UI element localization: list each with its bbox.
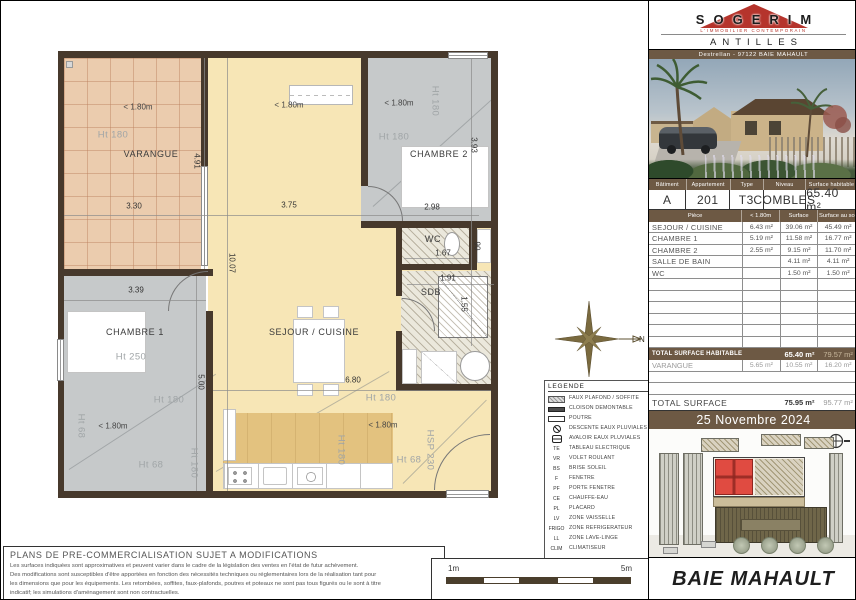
logo-block: SOGERIM L'IMMOBILIER CONTEMPORAIN ANTILL… bbox=[649, 1, 856, 50]
room-table-rows: SEJOUR / CUISINE 6.43 m² 39.06 m² 45.49 … bbox=[649, 222, 856, 348]
empty-row bbox=[649, 383, 856, 395]
siteplan-building bbox=[761, 434, 801, 446]
room-surface-sol: 45.49 m² bbox=[818, 222, 856, 232]
wall-bottom bbox=[58, 491, 498, 498]
legend-title: LEGENDE bbox=[548, 383, 649, 392]
room-name bbox=[649, 337, 743, 347]
varangue-name: VARANGUE bbox=[649, 360, 743, 371]
wall-right bbox=[491, 51, 498, 498]
wall-chambre1-sejour bbox=[206, 311, 213, 491]
siteplan-building bbox=[829, 453, 843, 543]
dim-line bbox=[64, 215, 479, 216]
svg-text:N: N bbox=[639, 335, 645, 344]
siteplan-car bbox=[663, 547, 678, 554]
legend-symbol: LV bbox=[548, 516, 565, 523]
legend-label: ZONE REFRIGERATEUR bbox=[569, 526, 632, 532]
room-name bbox=[649, 291, 743, 301]
plan-label: CHAMBRE 1 bbox=[106, 327, 164, 337]
unit-value-cell: 65.40 m² bbox=[806, 190, 856, 209]
varangue-surface: 10.55 m² bbox=[781, 360, 819, 371]
disclaimer-lines: Les surfaces indiquées sont approximativ… bbox=[10, 562, 438, 599]
legend-symbol: PL bbox=[548, 506, 565, 513]
room-table-row bbox=[649, 325, 856, 336]
plan-label: 5.00 bbox=[197, 374, 206, 390]
wall-chambre2-bottom bbox=[361, 221, 498, 228]
plan-label: 90 bbox=[473, 242, 482, 251]
plan-label: CHAMBRE 2 bbox=[410, 149, 468, 159]
legend-label: PLACARD bbox=[569, 506, 595, 512]
plan-label: Ht 180 bbox=[366, 393, 396, 404]
unit-header-cell: Appartement bbox=[687, 179, 731, 190]
dim-line bbox=[407, 284, 494, 285]
compass-rose-icon: N bbox=[541, 296, 646, 382]
wall-chambre2-left bbox=[361, 58, 368, 186]
room-lt180 bbox=[743, 256, 781, 266]
plan-label: 3.75 bbox=[281, 201, 297, 210]
plan-label: WC bbox=[425, 234, 441, 244]
total-habitable-floor: 79.57 m² bbox=[818, 350, 856, 359]
unit-value-cell: COMBLES bbox=[764, 190, 807, 209]
room-table-row bbox=[649, 279, 856, 290]
room-lt180 bbox=[743, 302, 781, 312]
siteplan-building bbox=[804, 437, 834, 449]
plan-label: SDB bbox=[421, 287, 441, 297]
room-lt180: 5.19 m² bbox=[743, 233, 781, 243]
legend-symbol bbox=[548, 396, 565, 403]
sdb-washbasin bbox=[421, 351, 457, 384]
total-surface-label: TOTAL SURFACE bbox=[649, 395, 781, 410]
room-table-row: WC 1.50 m² 1.50 m² bbox=[649, 268, 856, 279]
room-name: CHAMBRE 1 bbox=[649, 233, 743, 243]
bed-chambre1 bbox=[67, 311, 146, 373]
total-habitable-label: TOTAL SURFACE HABITABLE bbox=[649, 351, 781, 357]
siteplan-building bbox=[659, 453, 679, 545]
legend-item: PL PLACARD bbox=[548, 504, 649, 514]
divider bbox=[661, 34, 846, 35]
siteplan-building bbox=[701, 438, 739, 452]
room-lt180 bbox=[743, 337, 781, 347]
room-name: SALLE DE BAIN bbox=[649, 256, 743, 266]
legend-item: FRIGO ZONE REFRIGERATEUR bbox=[548, 524, 649, 534]
scale-segment bbox=[557, 577, 594, 584]
siteplan-unit-highlight bbox=[715, 459, 753, 495]
unit-header-cell: Niveau bbox=[764, 179, 806, 190]
legend-symbol: F bbox=[548, 476, 565, 483]
scale-segment bbox=[594, 577, 631, 584]
plan-label: Ht 180 bbox=[189, 448, 200, 478]
room-name bbox=[649, 314, 743, 324]
room-name: SEJOUR / CUISINE bbox=[649, 222, 743, 232]
plan-label: Ht 250 bbox=[116, 352, 146, 363]
plan-label: Ht 68 bbox=[397, 455, 422, 466]
room-table-row: SALLE DE BAIN 4.11 m² 4.11 m² bbox=[649, 256, 856, 267]
legend-item: DESCENTE EAUX PLUVIALES bbox=[548, 424, 649, 434]
siteplan-tree bbox=[817, 537, 834, 554]
room-lt180: 6.43 m² bbox=[743, 222, 781, 232]
plan-label: Ht 180 bbox=[336, 435, 347, 465]
room-surface: 1.50 m² bbox=[781, 268, 819, 278]
plan-label: < 1.80m bbox=[274, 101, 303, 110]
siteplan-tree bbox=[761, 537, 778, 554]
room-table-row bbox=[649, 314, 856, 325]
plan-label: 4.91 bbox=[193, 153, 202, 169]
siteplan-roof-vent bbox=[741, 519, 801, 531]
plan-label: Ht 68 bbox=[139, 460, 164, 471]
legend-item: VR VOLET ROULANT bbox=[548, 454, 649, 464]
brand-tagline: L'IMMOBILIER CONTEMPORAIN bbox=[649, 28, 856, 33]
floor-plan: < 1.80mHt 180VARANGUE3.304.91< 1.80m3.75… bbox=[1, 1, 648, 600]
plan-label: < 1.80m bbox=[123, 103, 152, 112]
scale-segment bbox=[520, 577, 557, 584]
legend-symbol: CLIM bbox=[548, 546, 565, 553]
disclaimer-line: les dimensions que pour les équipements.… bbox=[10, 580, 438, 589]
legend-label: CLIMATISEUR bbox=[569, 546, 606, 552]
room-surface-sol bbox=[818, 325, 856, 335]
legend-item: AVALOIR EAUX PLUVIALES bbox=[548, 434, 649, 444]
room-table-row bbox=[649, 291, 856, 302]
room-table-row bbox=[649, 302, 856, 313]
room-header-cell: Surface bbox=[780, 210, 818, 222]
room-surface-sol: 16.77 m² bbox=[818, 233, 856, 243]
legend-symbol: FRIGO bbox=[548, 526, 565, 533]
legend-label: FENETRE bbox=[569, 476, 595, 482]
wall-wc-left-lower bbox=[396, 331, 402, 389]
scale-segment bbox=[446, 577, 483, 584]
room-name: CHAMBRE 2 bbox=[649, 245, 743, 255]
plan-label: 3.30 bbox=[126, 202, 142, 211]
room-surface: 4.11 m² bbox=[781, 256, 819, 266]
legend-item: PF PORTE FENETRE bbox=[548, 484, 649, 494]
legend-label: ZONE VAISSELLE bbox=[569, 516, 615, 522]
room-lt180 bbox=[743, 268, 781, 278]
siteplan-building-rooms bbox=[755, 459, 803, 495]
sdb-washer bbox=[402, 349, 417, 384]
dim-line bbox=[64, 300, 206, 301]
room-surface bbox=[781, 291, 819, 301]
wall-top bbox=[58, 51, 498, 58]
kitchen-hob bbox=[228, 467, 252, 485]
unit-header-cell: Bâtiment bbox=[649, 179, 687, 190]
plan-label: 1.91 bbox=[440, 274, 456, 283]
room-header-cell: Pièce bbox=[649, 210, 742, 222]
legend-label: VOLET ROULANT bbox=[569, 456, 615, 462]
plan-label: 1.55 bbox=[460, 296, 469, 312]
kitchen-sink bbox=[263, 467, 287, 485]
side-panel: SOGERIM L'IMMOBILIER CONTEMPORAIN ANTILL… bbox=[648, 1, 856, 600]
window-chambre1-left bbox=[57, 339, 64, 381]
room-lt180 bbox=[743, 291, 781, 301]
kitchen-oven bbox=[297, 467, 323, 485]
unit-value-cell: 201 bbox=[686, 190, 730, 209]
plan-label: 3.93 bbox=[470, 137, 479, 153]
total-habitable-surface: 65.40 m² bbox=[781, 350, 819, 359]
legend-item: TE TABLEAU ELECTRIQUE bbox=[548, 444, 649, 454]
dining-chair bbox=[297, 306, 313, 318]
room-surface bbox=[781, 325, 819, 335]
room-lt180 bbox=[743, 314, 781, 324]
room-header-cell: Surface au sol bbox=[818, 210, 856, 222]
dim-line bbox=[471, 58, 472, 346]
wall-wc-bottom bbox=[401, 264, 477, 270]
dim-line bbox=[204, 58, 205, 269]
legend-label: POUTRE bbox=[569, 416, 592, 422]
legend-items: FAUX PLAFOND / SOFFITE CLOISON DEMONTABL… bbox=[548, 394, 649, 554]
scale-label-5m: 5m bbox=[621, 564, 632, 573]
room-name: WC bbox=[649, 268, 743, 278]
disclaimer-box: PLANS DE PRE-COMMERCIALISATION SUJET A M… bbox=[3, 546, 445, 600]
plan-label: Ht 180 bbox=[154, 395, 184, 406]
total-surface-floor: 95.77 m² bbox=[818, 395, 856, 410]
plan-label: 10.07 bbox=[228, 253, 237, 273]
room-surface-sol bbox=[818, 314, 856, 324]
plan-label: Ht 180 bbox=[379, 132, 409, 143]
legend-label: TABLEAU ELECTRIQUE bbox=[569, 446, 630, 452]
plan-label: HSP 230 bbox=[425, 430, 436, 471]
date-band: 25 Novembre 2024 bbox=[649, 411, 856, 429]
disclaimer-title: PLANS DE PRE-COMMERCIALISATION SUJET A M… bbox=[10, 550, 438, 560]
city-band: BAIE MAHAULT bbox=[649, 558, 856, 600]
varangue-lt: 5.65 m² bbox=[743, 360, 781, 371]
brand-name: SOGERIM bbox=[649, 12, 856, 27]
room-table-row: CHAMBRE 2 2.55 m² 9.15 m² 11.70 m² bbox=[649, 245, 856, 256]
legend-label: CHAUFFE-EAU bbox=[569, 496, 608, 502]
plan-label: < 1.80m bbox=[98, 422, 127, 431]
legend-symbol: BS bbox=[548, 466, 565, 473]
room-surface-sol: 11.70 m² bbox=[818, 245, 856, 255]
room-name bbox=[649, 325, 743, 335]
plan-label: 1.67 bbox=[435, 249, 451, 258]
room-name bbox=[649, 302, 743, 312]
siteplan-building bbox=[683, 453, 703, 545]
empty-row bbox=[649, 372, 856, 383]
legend-label: PORTE FENETRE bbox=[569, 486, 615, 492]
legend-symbol: CE bbox=[548, 496, 565, 503]
wall-wc-left-upper bbox=[396, 228, 402, 296]
legend-symbol: TE bbox=[548, 446, 565, 453]
room-surface bbox=[781, 279, 819, 289]
unit-header-cell: Type bbox=[731, 179, 765, 190]
plan-label: 2.98 bbox=[424, 203, 440, 212]
plan-label: 6.80 bbox=[345, 376, 361, 385]
window-entry-bottom bbox=[446, 490, 489, 498]
legend-symbol bbox=[548, 407, 565, 412]
plan-label: Ht 68 bbox=[76, 414, 87, 439]
scale-segment bbox=[483, 577, 520, 584]
plan-label: 3.39 bbox=[128, 286, 144, 295]
legend-label: ZONE LAVE-LINGE bbox=[569, 536, 618, 542]
room-lt180 bbox=[743, 325, 781, 335]
legend-item: LL ZONE LAVE-LINGE bbox=[548, 534, 649, 544]
room-surface-sol bbox=[818, 279, 856, 289]
legend-symbol bbox=[548, 426, 565, 433]
plan-label: < 1.80m bbox=[368, 421, 397, 430]
siteplan-car bbox=[701, 541, 716, 548]
room-lt180: 2.55 m² bbox=[743, 245, 781, 255]
scale-label-1m: 1m bbox=[448, 564, 459, 573]
legend-label: DESCENTE EAUX PLUVIALES bbox=[569, 426, 647, 432]
legend: LEGENDE FAUX PLAFOND / SOFFITE CLOISON D… bbox=[544, 380, 653, 562]
legend-item: BS BRISE SOLEIL bbox=[548, 464, 649, 474]
date-text: 25 Novembre 2024 bbox=[696, 413, 810, 427]
room-surface-sol bbox=[818, 337, 856, 347]
room-surface bbox=[781, 302, 819, 312]
address-band: Destrellan - 97122 BAIE MAHAULT bbox=[649, 50, 856, 59]
room-surface-sol bbox=[818, 291, 856, 301]
legend-item: POUTRE bbox=[548, 414, 649, 424]
room-surface-sol bbox=[818, 302, 856, 312]
legend-symbol: LL bbox=[548, 536, 565, 543]
legend-label: CLOISON DEMONTABLE bbox=[569, 406, 633, 412]
varangue-surface-sol: 16.20 m² bbox=[818, 360, 856, 371]
dim-line bbox=[404, 258, 469, 259]
room-surface-sol: 4.11 m² bbox=[818, 256, 856, 266]
unit-table-values: A201T3COMBLES65.40 m² bbox=[649, 190, 856, 210]
legend-symbol: PF bbox=[548, 486, 565, 493]
room-surface bbox=[781, 337, 819, 347]
city-name: BAIE MAHAULT bbox=[672, 568, 835, 591]
room-surface-sol: 1.50 m² bbox=[818, 268, 856, 278]
room-table-row bbox=[649, 337, 856, 348]
kitchen-cupboard bbox=[223, 409, 236, 461]
siteplan-tree bbox=[733, 537, 750, 554]
plan-label: Ht 180 bbox=[98, 130, 128, 141]
photo-flowers bbox=[705, 155, 815, 179]
total-habitable-band: TOTAL SURFACE HABITABLE 65.40 m² 79.57 m… bbox=[649, 348, 856, 360]
dim-line bbox=[227, 58, 228, 491]
sdb-basin-round bbox=[460, 351, 490, 381]
total-surface-value: 75.95 m² bbox=[781, 395, 819, 410]
dim-line bbox=[213, 390, 491, 391]
project-photo bbox=[649, 59, 856, 179]
room-name bbox=[649, 279, 743, 289]
legend-item: CLOISON DEMONTABLE bbox=[548, 404, 649, 414]
disclaimer-line: indicatif; les simulations d'aménagement… bbox=[10, 589, 438, 598]
legend-item: CE CHAUFFE-EAU bbox=[548, 494, 649, 504]
room-surface bbox=[781, 314, 819, 324]
plan-label: VARANGUE bbox=[124, 149, 179, 159]
plan-label: Ht 180 bbox=[430, 86, 441, 116]
room-surface: 9.15 m² bbox=[781, 245, 819, 255]
siteplan-mid-strip bbox=[713, 497, 805, 507]
disclaimer-line: Les surfaces indiquées sont approximativ… bbox=[10, 562, 438, 571]
room-surface: 39.06 m² bbox=[781, 222, 819, 232]
address-text: Destrellan - 97122 BAIE MAHAULT bbox=[699, 52, 809, 58]
siteplan-tree bbox=[789, 537, 806, 554]
dining-chair bbox=[323, 306, 339, 318]
plan-label: SEJOUR / CUISINE bbox=[269, 327, 359, 337]
page: < 1.80mHt 180VARANGUE3.304.91< 1.80m3.75… bbox=[0, 0, 856, 600]
plan-label: < 1.80m bbox=[384, 99, 413, 108]
site-plan bbox=[649, 429, 856, 558]
room-table-row: SEJOUR / CUISINE 6.43 m² 39.06 m² 45.49 … bbox=[649, 222, 856, 233]
room-table-row: CHAMBRE 1 5.19 m² 11.58 m² 16.77 m² bbox=[649, 233, 856, 244]
window-chambre2-top bbox=[448, 52, 488, 59]
legend-item: CLIM CLIMATISEUR bbox=[548, 544, 649, 554]
unit-value-cell: A bbox=[649, 190, 686, 209]
legend-item: F FENETRE bbox=[548, 474, 649, 484]
legend-symbol bbox=[548, 436, 565, 443]
varangue-row: VARANGUE 5.65 m² 10.55 m² 16.20 m² bbox=[649, 360, 856, 372]
room-header-cell: < 1.80m bbox=[742, 210, 780, 222]
disclaimer-line: Des modifications sont susceptibles d'êt… bbox=[10, 571, 438, 580]
legend-label: FAUX PLAFOND / SOFFITE bbox=[569, 396, 639, 402]
legend-label: AVALOIR EAUX PLUVIALES bbox=[569, 436, 640, 442]
room-varangue bbox=[64, 58, 201, 269]
legend-item: FAUX PLAFOND / SOFFITE bbox=[548, 394, 649, 404]
legend-symbol: VR bbox=[548, 456, 565, 463]
legend-item: LV ZONE VAISSELLE bbox=[548, 514, 649, 524]
total-surface-row: TOTAL SURFACE 75.95 m² 95.77 m² bbox=[649, 395, 856, 411]
scale-box: 1m 5m bbox=[431, 558, 648, 600]
room-table-header: Pièce< 1.80mSurfaceSurface au sol bbox=[649, 210, 856, 222]
brand-region: ANTILLES bbox=[649, 37, 856, 48]
drain-marker bbox=[66, 61, 73, 68]
legend-symbol bbox=[548, 416, 565, 422]
legend-label: BRISE SOLEIL bbox=[569, 466, 607, 472]
room-surface: 11.58 m² bbox=[781, 233, 819, 243]
room-lt180 bbox=[743, 279, 781, 289]
